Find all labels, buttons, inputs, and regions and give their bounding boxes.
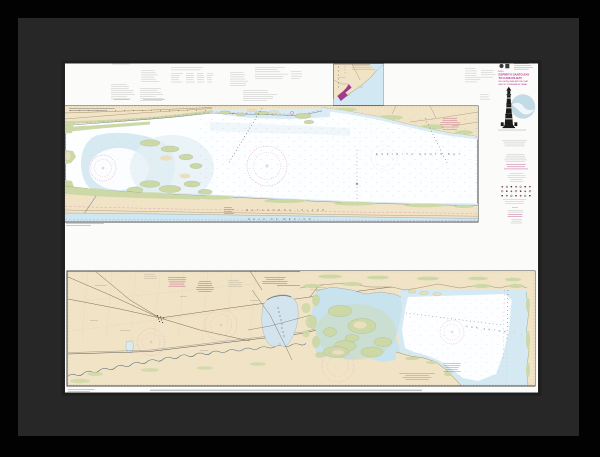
svg-text:INCLUDING SAN ANTONIO BAY: INCLUDING SAN ANTONIO BAY — [499, 80, 529, 83]
svg-text:G U L F O F M E X I C O: G U L F O F M E X I C O — [248, 219, 312, 221]
svg-text:AND VICTORIA BARGE CANAL: AND VICTORIA BARGE CANAL — [499, 83, 529, 86]
svg-text:TO CARLOS BAY: TO CARLOS BAY — [499, 76, 523, 80]
svg-text:M A T A G O R D A I S L A N D: M A T A G O R D A I S L A N D — [246, 209, 326, 212]
svg-text:E S P I R I T U S A N T O B: E S P I R I T U S A N T O B A Y — [376, 153, 462, 156]
